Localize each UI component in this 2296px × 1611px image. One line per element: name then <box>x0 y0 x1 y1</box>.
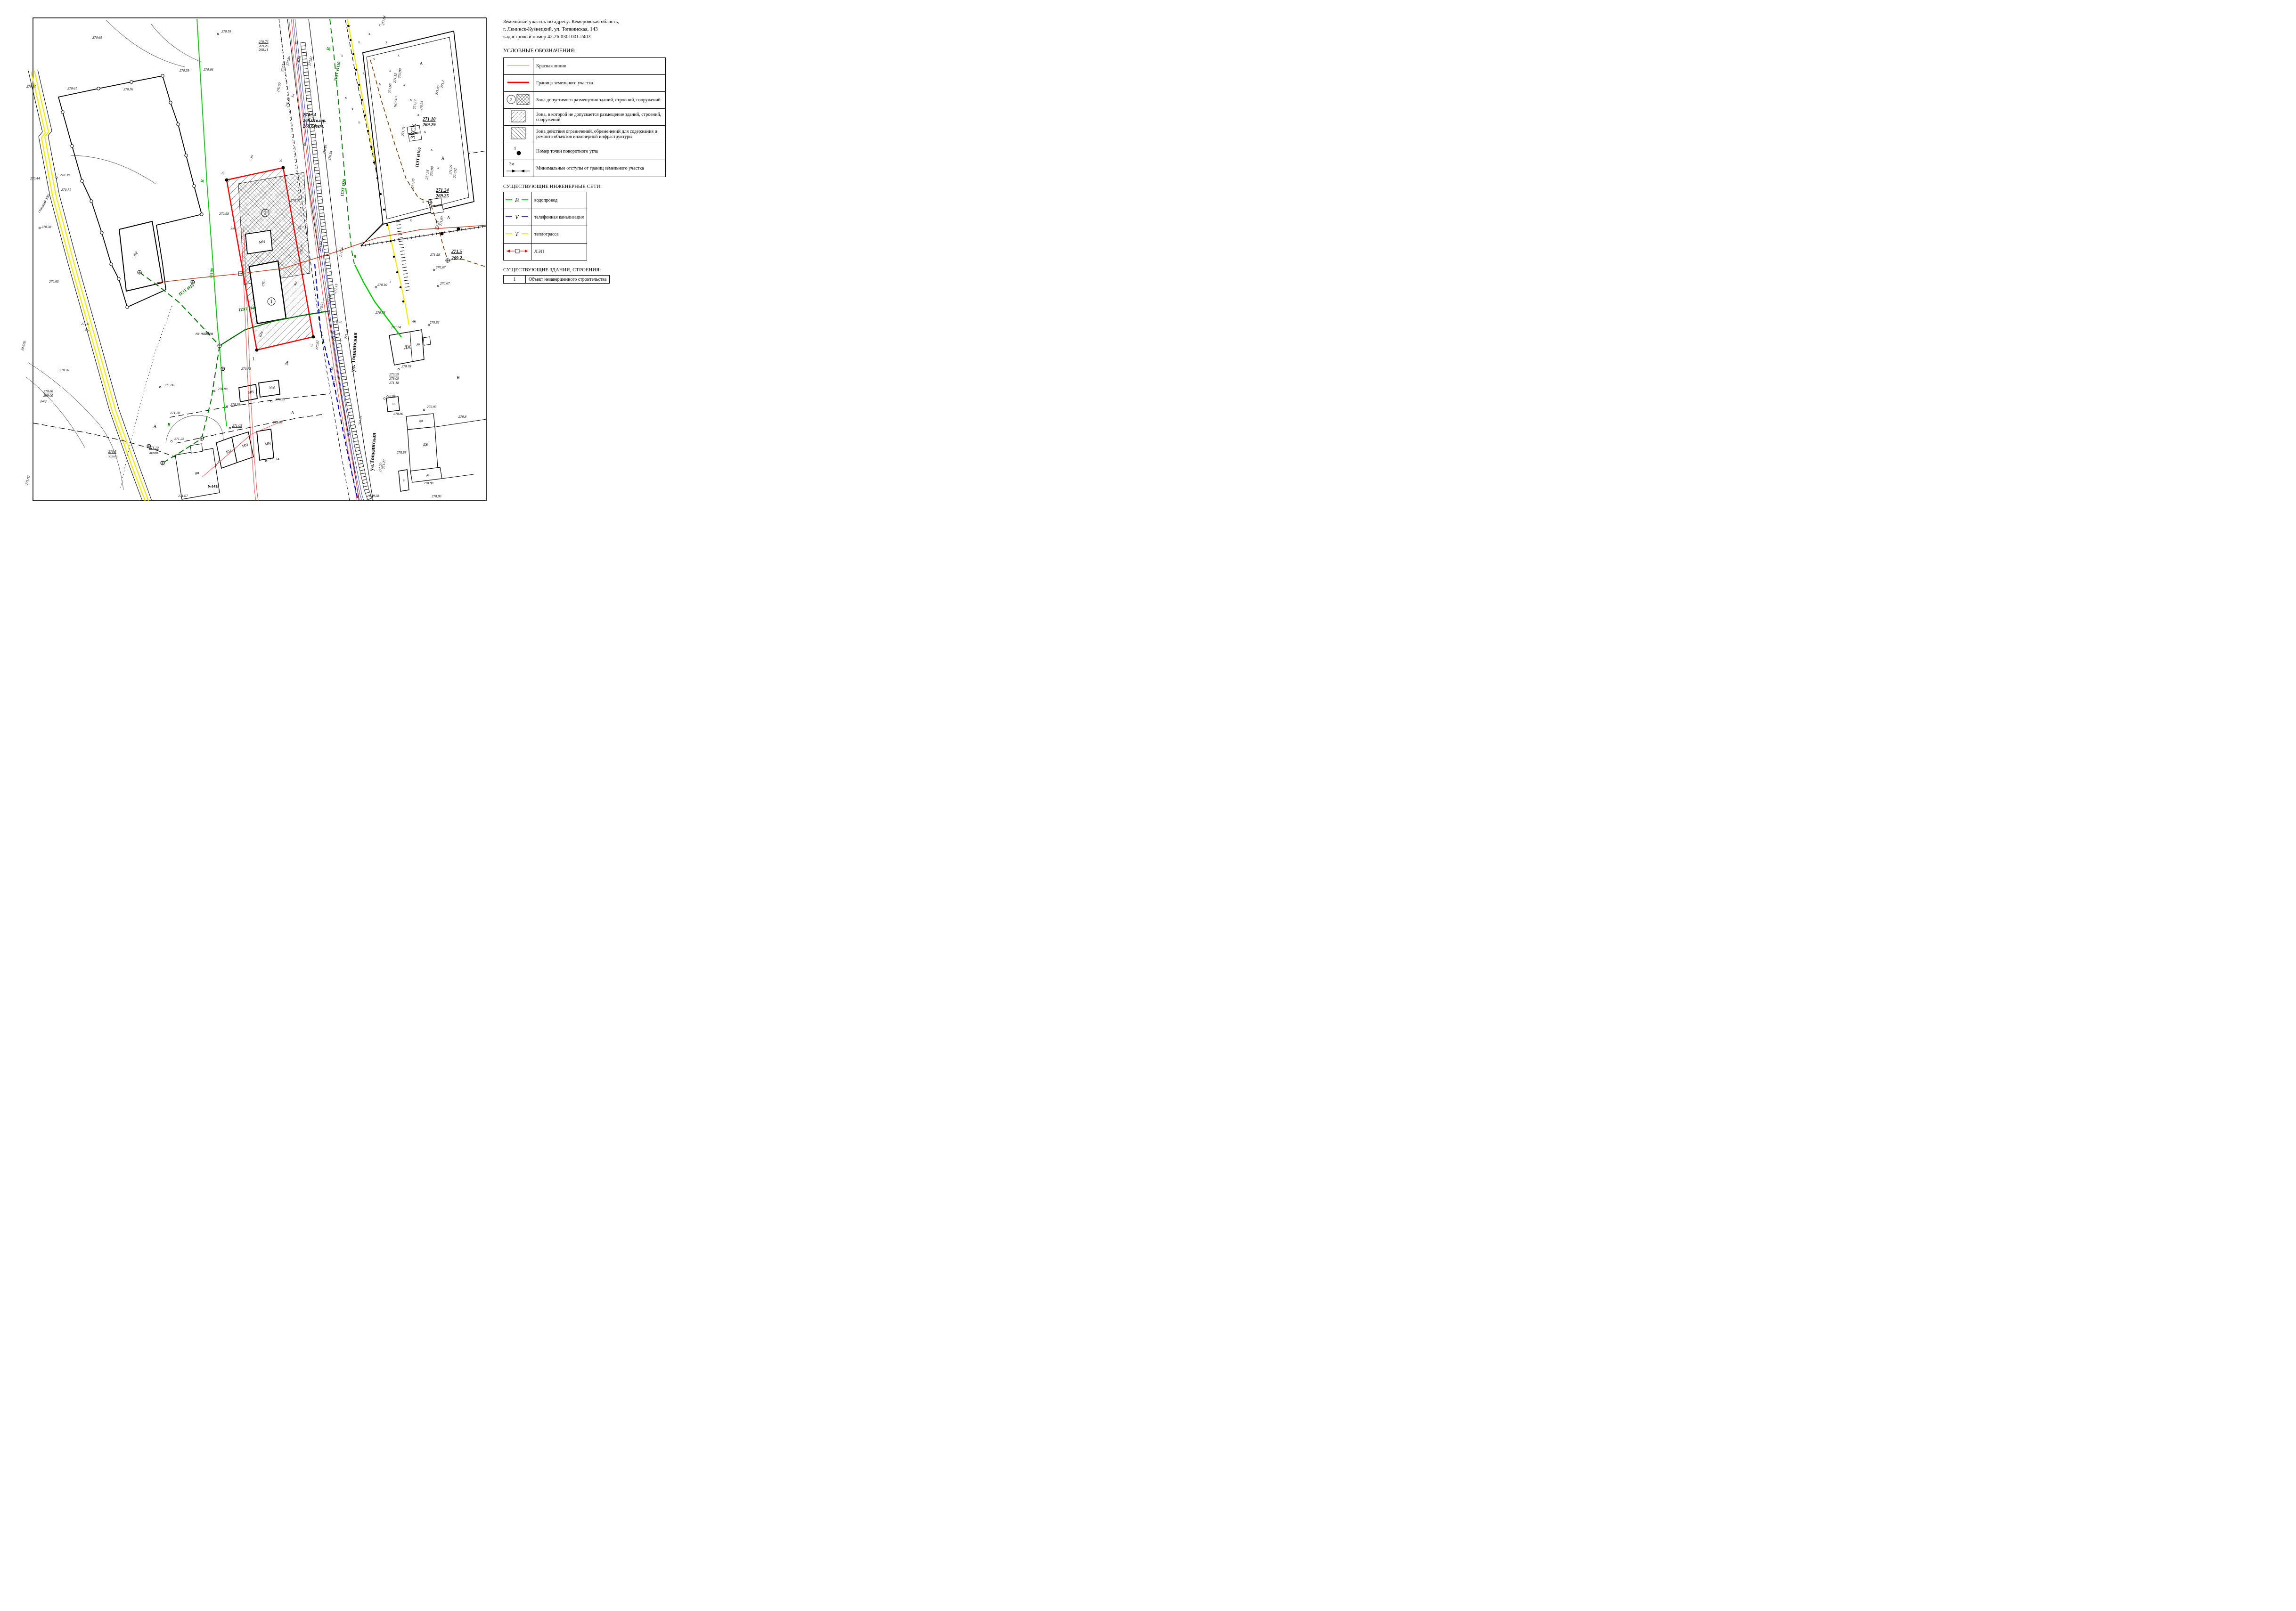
map-label: А <box>447 215 450 220</box>
map-label: В <box>353 254 356 259</box>
map-label: 269.2 <box>451 256 462 261</box>
map-label: 270.38 <box>60 173 70 177</box>
network-symbol-cell: Т <box>504 226 531 243</box>
map-label: 270,8 <box>458 415 466 419</box>
heat-line-dot <box>370 146 372 148</box>
legend-symbol-power <box>505 244 530 258</box>
fence-post-circle <box>177 123 180 126</box>
map-label: 270,73 <box>241 366 251 371</box>
map-label: 271,70 <box>410 179 416 189</box>
x-mark: x <box>379 81 381 86</box>
fence-post-circle <box>110 263 113 266</box>
map-label: №141а <box>208 484 219 488</box>
map-label: 270.86 <box>285 56 291 66</box>
map-label: 271.5 <box>451 249 462 254</box>
legend-symbol-red-line-thin <box>506 58 531 73</box>
map-label: 270.44 <box>30 176 40 180</box>
x-mark: x <box>358 40 360 44</box>
map-label: дн <box>426 472 431 477</box>
turn-point-dot <box>441 232 444 236</box>
legend-symbol-net: Т <box>505 227 530 241</box>
map-polygon <box>423 337 431 345</box>
elevation-point-circle <box>398 368 400 370</box>
map-label: 271,14 <box>412 99 417 110</box>
map-label: 270.84 <box>386 394 396 398</box>
elevation-point-circle <box>171 440 172 442</box>
map-label: 271,13 <box>392 73 398 83</box>
legend-symbol-turn-point: 1 <box>506 144 531 158</box>
map-label: 270.94 <box>327 150 333 161</box>
heat-line-dot <box>400 286 401 288</box>
map-label: А <box>154 424 157 429</box>
map-label: стр. <box>261 279 265 286</box>
elevation-point-circle <box>217 33 219 35</box>
x-mark: x <box>345 96 347 100</box>
x-mark: x <box>368 32 370 36</box>
fence-post-circle <box>81 179 83 182</box>
svg-text:В: В <box>515 196 519 203</box>
map-label: 271.08 <box>273 420 283 424</box>
map-label: 271.24 <box>435 188 449 193</box>
map-label: 270.78 <box>401 364 411 368</box>
legend-symbol-cell: 2 <box>504 92 533 109</box>
map-label: 271,64 <box>381 15 386 25</box>
map-label: 278,09 <box>389 376 399 381</box>
map-polygon <box>190 444 203 453</box>
map-label: 270.93 <box>295 55 302 65</box>
map-label: 271,20 <box>170 411 180 415</box>
contour-line <box>71 155 155 184</box>
turn-point-dot <box>457 228 460 231</box>
map-label: В <box>167 423 171 428</box>
map-label: 270,61 <box>26 84 36 89</box>
map-line <box>303 42 370 501</box>
heat-line-dot <box>350 39 351 41</box>
map-label: 271.20 <box>331 331 336 342</box>
map-label: Бк <box>330 366 334 371</box>
svg-text:2: 2 <box>510 97 513 103</box>
map-label: 270,39 <box>180 68 189 73</box>
legend-symbol-cell <box>504 74 533 91</box>
map-label: Бк <box>302 142 307 147</box>
x-mark: x <box>431 147 433 152</box>
map-label: 270.88 <box>218 387 228 391</box>
legend-row: 1Номер точки поворотного угла <box>504 143 666 160</box>
x-mark: x <box>398 53 400 57</box>
map-label: МН <box>247 390 254 395</box>
x-mark: x <box>385 40 387 44</box>
networks-title: СУЩЕСТВУЮЩИЕ ИНЖЕНЕРНЫЕ СЕТИ: <box>503 184 666 190</box>
map-label: 270.81 <box>322 144 328 155</box>
x-mark: x <box>373 57 375 61</box>
map-label: н <box>392 401 395 406</box>
x-mark: x <box>349 24 351 28</box>
map-label: 270,86 <box>432 494 441 498</box>
turn-point-dot <box>255 349 259 352</box>
heat-line-dot <box>358 84 360 86</box>
heat-line-dot <box>373 162 375 163</box>
legend-symbol-net: В <box>505 193 530 207</box>
fence-post-circle <box>100 231 103 234</box>
x-mark: x <box>437 165 439 170</box>
map-label: 271.00 <box>338 246 344 257</box>
map-label: 270.65 <box>49 279 59 284</box>
map-label: 270,92 <box>452 168 458 179</box>
fence-post-circle <box>200 213 203 216</box>
fence-post-circle <box>169 101 172 104</box>
map-label: 271,18 <box>425 170 430 180</box>
map-label: 270.6 <box>81 322 89 326</box>
elevation-point-circle <box>39 227 41 229</box>
legend-symbol-cell <box>504 126 533 143</box>
map-label: 2 <box>310 343 313 349</box>
map-label: 270.88 <box>424 481 433 485</box>
fence-post-circle <box>61 111 64 114</box>
map-label: 270,93 <box>419 101 424 111</box>
map-label: 270.95 <box>427 405 437 409</box>
map-label: 1 <box>252 357 254 362</box>
address-line-3: кадастровый номер 42:26:0301001:2403 <box>503 34 666 41</box>
address-line-2: г. Ленинск-Кузнецкий, ул. Топкинская, 14… <box>503 26 666 33</box>
legend-label: Минимальные отступы от границ земельного… <box>533 160 666 177</box>
map-label: 271.22 <box>378 463 383 473</box>
building-number: 1 <box>504 275 526 283</box>
heat-line-dot <box>361 99 363 101</box>
heat-line-dot <box>352 53 354 55</box>
map-label: 270.80 <box>43 389 53 393</box>
legend-row: Граница земельного участка <box>504 74 666 91</box>
map-polygon <box>408 427 438 471</box>
map-label: разр. <box>40 399 48 403</box>
fence-post-circle <box>97 87 100 90</box>
map-label: ДЖ <box>404 345 411 350</box>
x-mark: x <box>410 218 412 222</box>
map-label: 271.03 <box>232 423 242 428</box>
legend-row: Зона, в которой не допускается размещени… <box>504 109 666 126</box>
map-label: 3 <box>279 158 282 163</box>
map-label: Бк <box>294 41 299 46</box>
x-mark: x <box>363 71 365 75</box>
map-label: А <box>441 156 445 161</box>
elevation-point-circle <box>437 285 439 287</box>
x-mark: x <box>351 107 353 111</box>
map-label: МН <box>259 239 265 244</box>
heat-line-dot <box>396 271 398 273</box>
legend-table: Красная линияГраница земельного участка2… <box>503 57 666 177</box>
map-label: В <box>326 47 332 51</box>
map-label: ул.Топкинская <box>368 432 377 471</box>
svg-text:1: 1 <box>514 145 516 152</box>
svg-text:Т: Т <box>515 230 519 237</box>
elevation-point-circle <box>213 390 215 392</box>
map-label: 270,67 <box>436 265 446 269</box>
map-label: 269.01в.тр. <box>302 118 327 123</box>
map-label: залит. <box>108 454 118 458</box>
legend-symbol-cell <box>504 109 533 126</box>
legend-label: Граница земельного участка <box>533 74 666 91</box>
x-mark: x <box>424 130 426 134</box>
map-line <box>436 419 486 427</box>
map-label: 271.06 <box>164 383 174 387</box>
svg-text:3м: 3м <box>509 162 515 166</box>
map-label: ПЭТ Ø20 <box>340 178 347 196</box>
fence-post-circle <box>185 154 188 157</box>
map-label: ЗКСК <box>409 123 417 139</box>
map-label: Н <box>457 375 460 380</box>
map-label: 270.76 <box>259 40 269 44</box>
map-label: 270.74 <box>391 325 401 329</box>
map-label: 270.81 <box>307 56 313 66</box>
network-row: Vтелефонная канализация <box>504 209 587 226</box>
x-mark: x <box>410 98 412 102</box>
heat-line-dot <box>402 301 404 302</box>
map-label: 271,18 <box>389 381 399 385</box>
legend-symbol-cell <box>504 57 533 74</box>
map-label: 3м <box>284 360 289 366</box>
map-label: 271.15 <box>333 283 338 293</box>
map-polygon <box>119 221 163 291</box>
elevation-point-circle <box>433 269 435 271</box>
fence-post-circle <box>193 185 196 187</box>
elevation-point-circle <box>229 427 231 429</box>
map-label: 270.59 <box>221 29 231 33</box>
x-mark: x <box>341 53 343 57</box>
map-label: 270.38 <box>41 225 51 229</box>
heat-line-dot <box>390 240 392 242</box>
map-label: не найден <box>196 331 213 336</box>
heat-line-dot <box>393 256 395 258</box>
network-label: теплотрасса <box>531 226 587 243</box>
map-label: МН <box>264 441 271 446</box>
contour-line <box>151 24 202 62</box>
map-label: 270.99 <box>230 402 240 407</box>
legend-row: Зона действия ограничений, обременений д… <box>504 126 666 143</box>
network-label: телефонная канализация <box>531 209 587 226</box>
map-label: 2 <box>264 210 267 216</box>
map-label: дн <box>419 418 423 423</box>
legend-symbol-setback: 3м <box>506 161 531 175</box>
map-label: В <box>200 179 205 184</box>
buildings-title: СУЩЕСТВУЮЩИЕ ЗДАНИЯ, СТРОЕНИЯ: <box>503 267 666 273</box>
network-symbol-cell: В <box>504 192 531 209</box>
legend-label: Номер точки поворотного угла <box>533 143 666 160</box>
fence-post-circle <box>161 74 164 77</box>
map-label: 271,10 <box>149 446 159 450</box>
map-label: 279,38 <box>369 494 379 498</box>
network-row: Ттеплотрасса <box>504 226 587 243</box>
map-label: ✳ <box>412 319 416 325</box>
legend-title: УСЛОВНЫЕ ОБОЗНАЧЕНИЯ: <box>503 48 666 54</box>
map-label: 271.04 <box>318 241 323 251</box>
map-label: 271.22 <box>332 320 342 324</box>
map-label: 271.22 <box>174 437 184 441</box>
map-label: 3м <box>230 226 235 230</box>
x-mark: x <box>358 120 360 124</box>
map-label: 270.66 <box>204 67 213 72</box>
heat-line-dot <box>386 224 388 226</box>
network-symbol-cell: V <box>504 209 531 226</box>
utility-line <box>197 19 227 426</box>
map-label: 270.07 <box>291 198 301 203</box>
heat-line-dot <box>355 69 357 71</box>
map-label: 270,99 <box>429 166 434 177</box>
map-label: 271.10 <box>422 117 436 122</box>
map-label: 271.32 <box>346 425 351 435</box>
legend-row: 2Зона допустимого размещения зданий, стр… <box>504 92 666 109</box>
fence-post-circle <box>71 145 74 147</box>
building-label: Объект незавершенного строительства <box>526 275 610 283</box>
elevation-point-circle <box>375 286 377 288</box>
map-label: А <box>291 410 294 415</box>
map-label: стальн. <box>37 201 47 213</box>
svg-text:V: V <box>515 213 520 220</box>
network-label: ЛЭП <box>531 243 587 260</box>
map-label: 269.29 <box>422 122 436 128</box>
turn-point-dot <box>225 179 229 182</box>
x-mark: x <box>417 113 419 117</box>
address-line-1: Земельный участок по адресу: Кемеровская… <box>503 19 666 25</box>
legend-label: Зона действия ограничений, обременений д… <box>533 126 666 143</box>
turn-point-dot <box>282 166 285 170</box>
map-line <box>442 474 474 479</box>
x-mark: x <box>389 68 391 73</box>
map-label: ог. <box>85 328 89 332</box>
map-label: 269.25 <box>435 194 449 199</box>
x-mark: x <box>403 82 405 87</box>
legend-label: Красная линия <box>533 57 666 74</box>
elevation-point-circle <box>270 400 272 402</box>
network-label: водопровод <box>531 192 587 209</box>
legend-panel: Земельный участок по адресу: Кемеровская… <box>503 19 666 284</box>
map-label: 270.61 <box>67 86 77 90</box>
fence-post-circle <box>90 200 93 203</box>
map-label: 270.92 <box>319 301 324 312</box>
map-label: 271.14 <box>270 457 279 461</box>
heat-line-dot <box>380 193 382 195</box>
map-label: 270.86 <box>393 412 403 416</box>
map-label: А <box>420 61 423 66</box>
network-row: ЛЭП <box>504 243 587 260</box>
map-label: 271.92 <box>24 475 31 485</box>
buildings-table: 1Объект незавершенного строительства <box>503 275 610 284</box>
map-label: Бк <box>291 93 295 98</box>
map-label: 274.54 <box>302 113 316 118</box>
map-label: дж <box>423 442 429 447</box>
map-label: 270,99 <box>397 68 402 79</box>
map-label: дн <box>417 342 420 346</box>
legend-symbol-zone-forbidden <box>506 109 531 123</box>
map-label: 270.83 <box>430 320 440 325</box>
map-line <box>309 19 373 501</box>
map-label: 270.74 <box>376 310 385 315</box>
elevation-point-circle <box>265 460 267 462</box>
legend-label: Зона, в которой не допускается размещени… <box>533 109 666 126</box>
legend-symbol-net: V <box>505 210 530 224</box>
building-row: 1Объект незавершенного строительства <box>504 275 610 283</box>
contour-line <box>106 20 185 67</box>
map-label: 270.76 <box>59 368 69 372</box>
map-label: 269.00 <box>43 393 53 398</box>
map-label: 4 <box>221 171 224 176</box>
fence-post-circle <box>117 277 120 280</box>
map-label: 3м <box>249 154 254 160</box>
map-label: 270,67 <box>440 281 450 285</box>
map-label: 271,66 <box>387 83 392 94</box>
legend-row: 3мМинимальные отступы от границ земельно… <box>504 160 666 177</box>
legend-label: Зона допустимого размещения зданий, стро… <box>533 92 666 109</box>
legend-symbol-cell: 1 <box>504 143 533 160</box>
map-label: 271·58 <box>430 252 440 257</box>
map-label: МН <box>269 385 276 390</box>
map-label: 270,71 <box>61 187 71 192</box>
map-label: 270.87 <box>315 340 320 350</box>
map-label: 270.58 <box>219 212 229 216</box>
network-symbol-cell <box>504 243 531 260</box>
fence-post-circle <box>130 81 133 83</box>
legend-symbol-zone-allowed: 2 <box>506 92 531 106</box>
heat-line-dot <box>364 114 366 116</box>
map-label: 270.99 <box>275 397 285 401</box>
map-label: 271.07 <box>178 494 188 498</box>
map-label: 270.50 <box>276 82 282 92</box>
elevation-point-circle <box>384 398 385 399</box>
map-label: н <box>403 478 406 482</box>
heat-line-dot <box>367 130 369 132</box>
cadastral-plan-page: xxxxxxxxxxxxxxxxxxxxxx270,69270.59270,39… <box>0 0 728 511</box>
map-label: 270.10 <box>377 283 387 287</box>
heat-line-dot <box>376 177 378 179</box>
contour-line <box>26 377 85 447</box>
legend-symbol-zone-restrictions <box>506 126 531 140</box>
map-label: 279,99 <box>389 372 399 376</box>
map-label: 270.5 <box>108 449 116 454</box>
map-label: залит. <box>148 450 159 455</box>
map-label: 268,11 <box>259 48 268 52</box>
elevation-point-circle <box>159 386 161 388</box>
map-label: ул. Топкинская <box>349 332 359 372</box>
contour-line <box>28 363 123 490</box>
map-label: дн <box>195 471 199 475</box>
map-label: 271.13 <box>332 376 337 387</box>
legend-symbol-cell: 3м <box>504 160 533 177</box>
elevation-point-circle <box>423 409 425 411</box>
x-mark: x <box>422 199 424 203</box>
map-label: ПЭТ Ø15 <box>178 283 195 297</box>
map-label: 270,76 <box>123 87 133 91</box>
map-label: 1 <box>270 299 273 304</box>
turn-point-dot <box>312 335 315 339</box>
map-label: г <box>390 279 391 284</box>
map-label: 270.88 <box>397 450 407 455</box>
map-label: 268.64зем. <box>302 124 324 129</box>
legend-symbol-red-line-thick <box>506 75 531 89</box>
networks-table: ВводопроводVтелефонная канализацияТтепло… <box>503 192 587 260</box>
map-label: 24-500 <box>20 340 27 351</box>
heat-line-dot <box>383 209 385 211</box>
map-label: 271.34 <box>358 415 363 426</box>
network-row: Вводопровод <box>504 192 587 209</box>
map-label: 270,69 <box>92 35 102 40</box>
fence-post-circle <box>126 306 129 309</box>
map-label: 271,71 <box>400 126 406 136</box>
legend-row: Красная линия <box>504 57 666 74</box>
